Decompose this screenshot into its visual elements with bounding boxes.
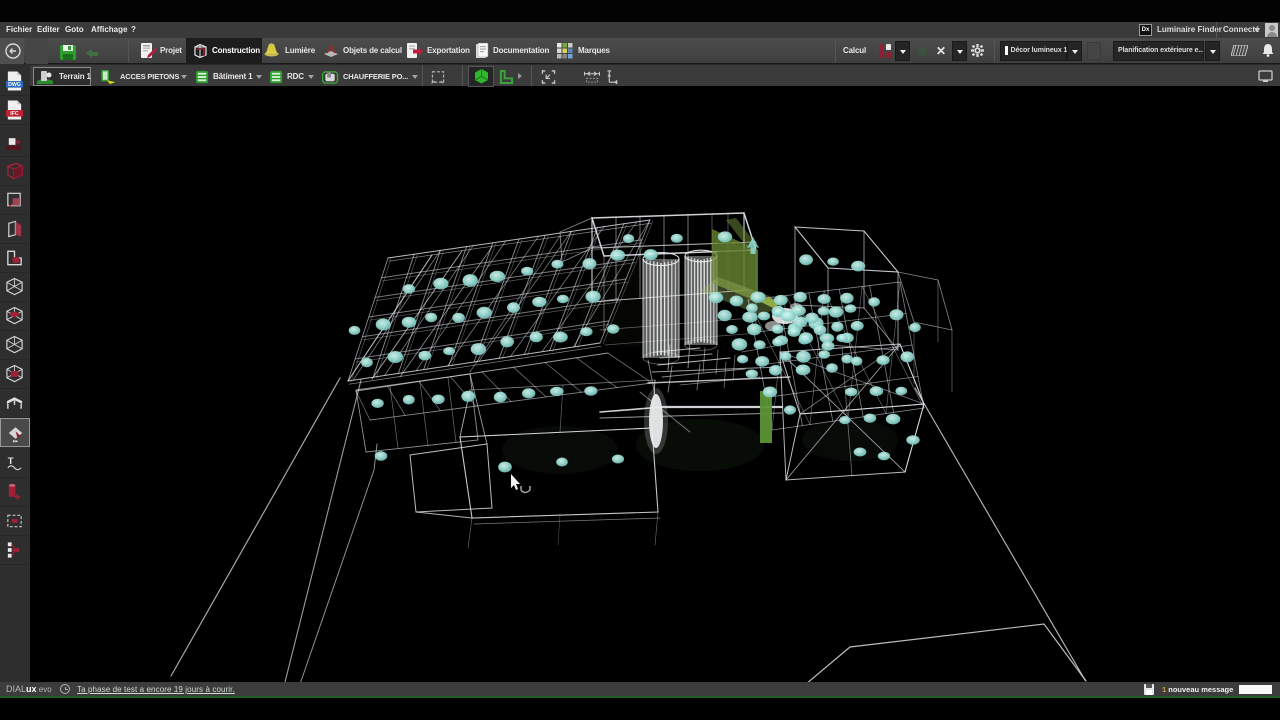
svg-text:DWG: DWG — [8, 82, 21, 88]
svg-text:▸▸: ▸▸ — [13, 440, 18, 444]
svg-text:IFC: IFC — [10, 111, 19, 117]
